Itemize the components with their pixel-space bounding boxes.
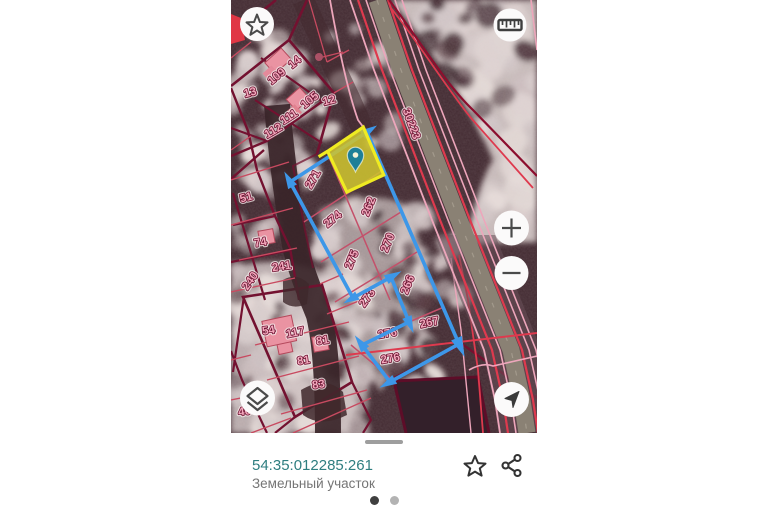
svg-text:81: 81 <box>315 334 330 348</box>
svg-text:81: 81 <box>296 354 311 368</box>
svg-text:83: 83 <box>311 378 325 392</box>
svg-text:54: 54 <box>261 324 276 338</box>
